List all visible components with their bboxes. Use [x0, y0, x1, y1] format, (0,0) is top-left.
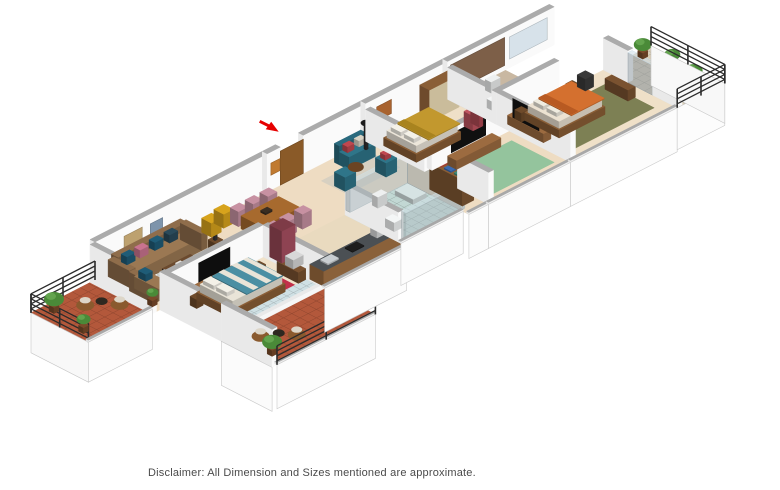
wicker-chair-1-cushion	[80, 297, 91, 303]
bath2-south-wall-side	[492, 90, 497, 125]
north-wall-entry-left-side	[262, 151, 267, 192]
disclaimer-text: Disclaimer: All Dimension and Sizes ment…	[148, 467, 476, 479]
lower-balcony-plant-1-highlight	[264, 336, 274, 343]
floor-plan-stage: Disclaimer: All Dimension and Sizes ment…	[0, 0, 780, 490]
wicker-chair-2-cushion	[114, 296, 125, 302]
refrigerator-side	[270, 225, 282, 263]
bath1-glass-south-side	[402, 211, 406, 241]
lower-balcony-chair-2-cushion	[291, 326, 302, 332]
west-balcony-plant-1-highlight	[46, 293, 56, 300]
entrance-direction-arrow	[266, 122, 279, 132]
floor-plan-3d	[0, 0, 780, 490]
lower-balcony-chair-1-cushion	[255, 328, 266, 334]
foyer-sofa-back-side	[334, 143, 339, 165]
east-balcony-plant-1-highlight	[636, 39, 645, 45]
west-balcony-plant-2-highlight	[78, 315, 85, 320]
wicker-table	[96, 297, 108, 305]
living-corner-plant-highlight	[148, 289, 154, 293]
foyer-table	[348, 162, 364, 172]
